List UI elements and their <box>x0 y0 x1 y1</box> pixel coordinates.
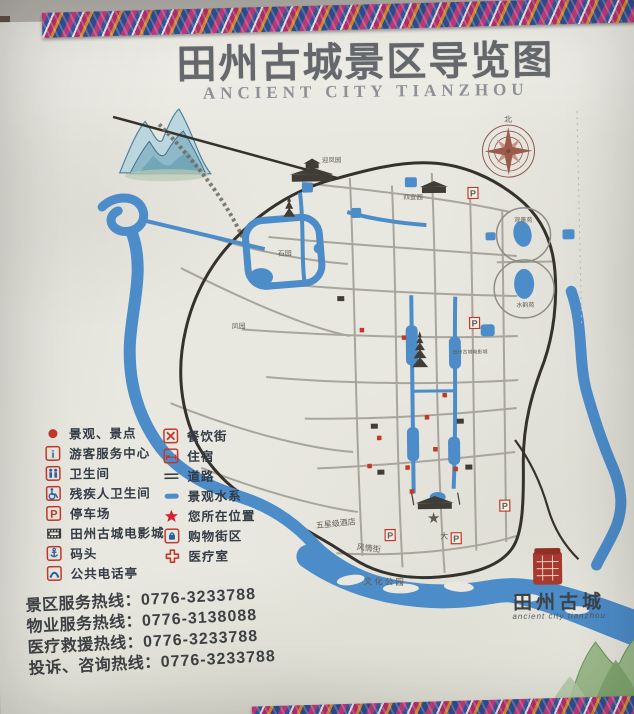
legend-item: i 游客服务中心 <box>45 444 164 460</box>
svg-text:i: i <box>51 448 54 460</box>
svg-text:P: P <box>387 531 393 541</box>
hotline-list: 景区服务热线：0776-3233788 物业服务热线：0776-3138088 … <box>25 579 276 676</box>
legend-item: 道路 <box>163 467 255 483</box>
shopping-district-icon <box>164 528 180 544</box>
legend-item: 田州古城电影城 <box>46 524 165 540</box>
map-label: 文化公园 <box>364 576 406 587</box>
lodging-icon <box>163 448 179 464</box>
legend-item: 码头 <box>46 544 165 560</box>
svg-text:P: P <box>50 508 57 520</box>
legend-item: 餐饮街 <box>163 427 255 443</box>
legend-item: 公共电话亭 <box>47 564 166 580</box>
legend-item: 景观水系 <box>164 487 256 503</box>
legend-item: P 停车场 <box>46 504 165 520</box>
svg-text:P: P <box>472 318 478 328</box>
you-are-here-star: ★ <box>427 510 441 527</box>
map-label: 水韵苑 <box>516 301 534 309</box>
compass-north-label: 北 <box>504 115 512 124</box>
parking-marker: P <box>468 187 478 198</box>
map-label: 田州古城电影城 <box>452 348 487 355</box>
sign-fold-line <box>577 111 582 325</box>
accessible-toilet-icon <box>46 485 62 501</box>
legend-item: 住宿 <box>163 447 255 463</box>
map-label: 大 <box>440 531 448 541</box>
map-sign-board: 田州古城景区导览图 ANCIENT CITY TIANZHOU <box>0 14 634 714</box>
map-label: 石园 <box>278 250 292 258</box>
legend-item: 购物街区 <box>164 527 256 543</box>
mountain-painting-topleft <box>119 109 211 182</box>
photo-frame: 田州古城景区导览图 ANCIENT CITY TIANZHOU <box>0 0 634 714</box>
legend-right-column: 餐饮街 住宿 道路 景观水系 您所在位置 <box>163 427 256 568</box>
svg-text:P: P <box>470 188 476 198</box>
legend-item: 医疗室 <box>164 547 256 563</box>
map-label: 四宜园 <box>403 192 423 201</box>
medical-room-icon <box>164 548 180 564</box>
visitor-center-icon: i <box>45 445 61 461</box>
parking-icon: P <box>46 505 62 521</box>
dining-street-icon <box>163 428 179 444</box>
road-icon <box>163 468 179 484</box>
map-label: 五星级酒店 <box>315 516 356 530</box>
svg-text:P: P <box>453 534 459 544</box>
your-location-star-icon <box>164 508 180 524</box>
parking-marker: P <box>451 533 461 544</box>
legend-left-column: 景观、景点 i 游客服务中心 卫生间 残疾人卫生间 P 停车场 <box>45 424 165 585</box>
east-gate-building <box>420 181 448 193</box>
scenic-spot-icon <box>45 425 61 441</box>
legend-item: 您所在位置 <box>164 507 256 523</box>
svg-text:P: P <box>502 501 508 511</box>
parking-marker: P <box>470 317 480 328</box>
map-label: 风情街 <box>356 542 381 555</box>
parking-marker: P <box>385 529 395 540</box>
map-label: 凤园 <box>232 322 246 330</box>
wharf-icon <box>46 545 62 561</box>
red-seal-stamp <box>532 547 562 585</box>
legend-item: 残疾人卫生间 <box>46 484 165 500</box>
public-phone-icon <box>47 565 63 581</box>
cinema-icon <box>46 525 62 541</box>
legend-item: 景观、景点 <box>45 424 164 440</box>
parking-marker: P <box>500 500 510 511</box>
brand-script: ancient city tianzhou <box>499 611 619 621</box>
scenic-water-icon <box>164 488 180 504</box>
compass-rose-icon: 北 <box>482 115 535 178</box>
map-label: 迎凤园 <box>322 155 342 164</box>
legend-item: 卫生间 <box>45 464 164 480</box>
toilet-icon <box>45 465 61 481</box>
map-label: 观景苑 <box>514 216 532 224</box>
